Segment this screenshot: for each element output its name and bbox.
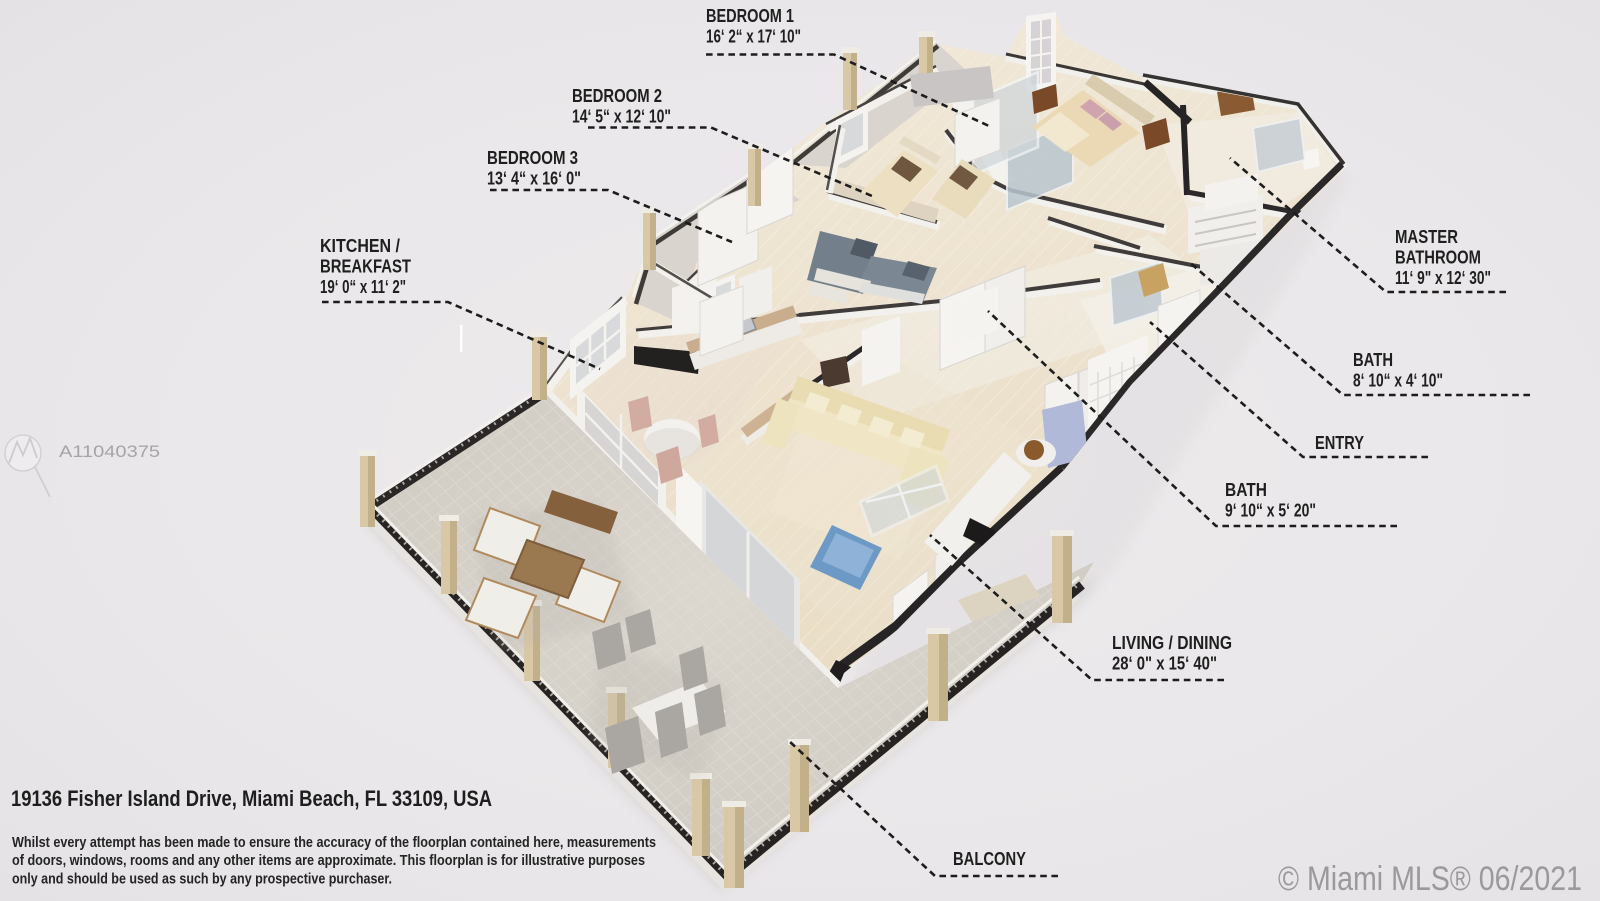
svg-text:ENTRY: ENTRY bbox=[1315, 433, 1364, 453]
svg-text:Whilst every attempt has been: Whilst every attempt has been made to en… bbox=[12, 835, 656, 851]
svg-text:BEDROOM 2: BEDROOM 2 bbox=[572, 86, 662, 106]
svg-text:BATH: BATH bbox=[1353, 350, 1393, 370]
svg-text:19‘ 0“ x 11‘ 2": 19‘ 0“ x 11‘ 2" bbox=[320, 277, 406, 297]
svg-text:LIVING / DINING: LIVING / DINING bbox=[1112, 633, 1232, 653]
svg-text:BEDROOM 3: BEDROOM 3 bbox=[487, 148, 578, 168]
svg-text:19136 Fisher Island Drive, Mia: 19136 Fisher Island Drive, Miami Beach, … bbox=[11, 786, 492, 811]
svg-text:9‘ 10“ x 5‘ 20": 9‘ 10“ x 5‘ 20" bbox=[1225, 501, 1316, 521]
svg-text:A11040375: A11040375 bbox=[59, 442, 160, 461]
svg-text:13‘ 4“ x 16‘ 0": 13‘ 4“ x 16‘ 0" bbox=[487, 169, 581, 189]
svg-text:14‘ 5“ x 12‘ 10": 14‘ 5“ x 12‘ 10" bbox=[572, 107, 671, 127]
svg-text:only and should be used as suc: only and should be used as such by any p… bbox=[12, 872, 392, 888]
svg-text:8‘ 10“ x 4‘ 10": 8‘ 10“ x 4‘ 10" bbox=[1353, 371, 1443, 391]
svg-text:BREAKFAST: BREAKFAST bbox=[320, 257, 411, 277]
svg-text:28‘ 0" x 15‘ 40": 28‘ 0" x 15‘ 40" bbox=[1112, 654, 1217, 674]
svg-text:BALCONY: BALCONY bbox=[953, 849, 1026, 869]
svg-text:of doors, windows, rooms and a: of doors, windows, rooms and any other i… bbox=[12, 853, 645, 869]
svg-text:BEDROOM 1: BEDROOM 1 bbox=[706, 6, 794, 26]
svg-text:KITCHEN /: KITCHEN / bbox=[320, 236, 400, 256]
svg-text:16‘ 2“ x 17‘ 10": 16‘ 2“ x 17‘ 10" bbox=[706, 27, 801, 47]
svg-text:MASTER: MASTER bbox=[1395, 227, 1458, 247]
svg-text:11‘ 9" x 12‘ 30": 11‘ 9" x 12‘ 30" bbox=[1395, 268, 1491, 288]
svg-text:© Miami MLS® 06/2021: © Miami MLS® 06/2021 bbox=[1278, 860, 1582, 898]
svg-text:BATH: BATH bbox=[1225, 480, 1267, 500]
svg-text:BATHROOM: BATHROOM bbox=[1395, 248, 1481, 268]
